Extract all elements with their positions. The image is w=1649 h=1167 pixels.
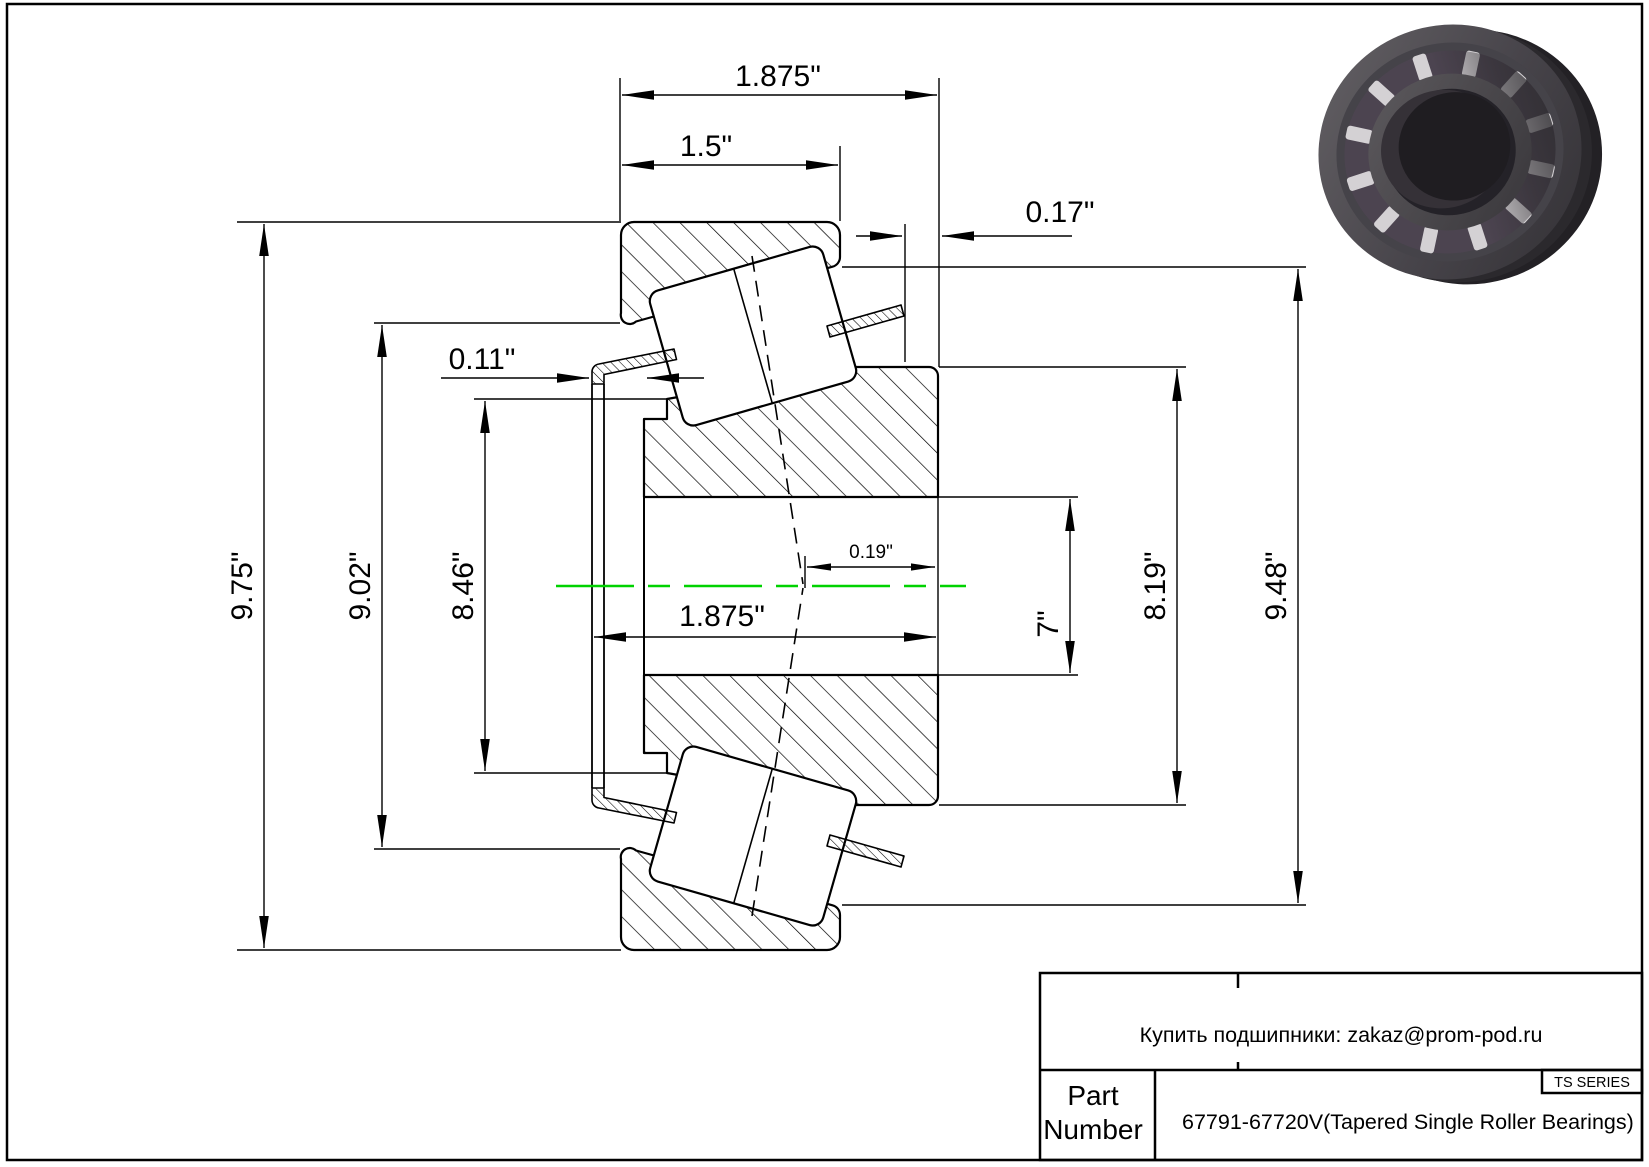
series-label: TS SERIES — [1554, 1075, 1630, 1091]
dim-overall-width-lower-label: 1.875" — [679, 600, 765, 633]
dim-outer-diameter: 9.75" — [226, 224, 264, 948]
dim-8-19: 8.19" — [1139, 369, 1177, 803]
part-label-line1: Part — [1067, 1080, 1119, 1111]
dim-standout: 0.17" — [856, 196, 1095, 236]
title-block: Купить подшипники: zakaz@prom-pod.ru TS … — [1040, 973, 1642, 1160]
dim-8-46-label: 8.46" — [447, 551, 480, 620]
dim-9-48-label: 9.48" — [1260, 551, 1293, 620]
dim-outer-diameter-label: 9.75" — [226, 551, 259, 620]
dim-sleeve-thickness-label: 0.11" — [449, 343, 516, 376]
dim-cup-width-label: 1.5" — [680, 130, 732, 163]
bearing-section-bottom — [592, 675, 938, 950]
dim-8-46: 8.46" — [447, 401, 485, 771]
dim-9-02: 9.02" — [344, 325, 382, 847]
sleeve-flange-top — [592, 349, 677, 384]
dim-8-19-label: 8.19" — [1139, 551, 1172, 620]
contact-text: Купить подшипники: zakaz@prom-pod.ru — [1140, 1023, 1543, 1047]
bearing-3d-image — [1285, 0, 1635, 324]
dim-9-02-label: 9.02" — [344, 551, 377, 620]
dim-apex-offset: 0.19" — [807, 542, 935, 567]
dim-bore-diameter-label: 7" — [1032, 610, 1065, 637]
sleeve-flange-bottom — [592, 788, 677, 823]
dim-apex-offset-label: 0.19" — [849, 542, 893, 563]
dim-cup-width: 1.5" — [622, 130, 838, 165]
dim-standout-label: 0.17" — [1025, 196, 1094, 229]
dim-9-48: 9.48" — [1260, 269, 1298, 903]
dim-overall-width-lower: 1.875" — [594, 600, 936, 637]
bearing-section-top — [592, 222, 938, 497]
dim-overall-width-top: 1.875" — [622, 60, 937, 95]
drawing-page: 1.875" 1.5" 0.17" 0.11" 9.75" 9.02" 8.46… — [0, 0, 1649, 1167]
dim-overall-width-top-label: 1.875" — [735, 60, 821, 93]
bearing-drawing-canvas: 1.875" 1.5" 0.17" 0.11" 9.75" 9.02" 8.46… — [0, 0, 1649, 1167]
part-number-text: 67791-67720V(Tapered Single Roller Beari… — [1182, 1110, 1634, 1134]
part-label-line2: Number — [1043, 1114, 1143, 1145]
dim-bore-diameter: 7" — [1032, 499, 1070, 673]
